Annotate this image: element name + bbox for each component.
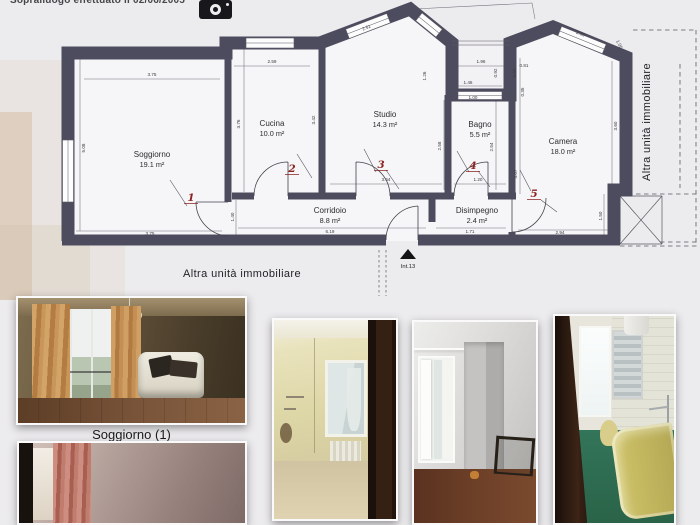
dim-label: 0.92	[512, 68, 517, 77]
photo-bathroom	[553, 314, 676, 525]
dark-door-frame	[368, 320, 396, 519]
dim-label: 3.64	[382, 177, 391, 182]
dark-doorway	[19, 443, 33, 523]
tile-floor	[274, 461, 369, 519]
room-area-disimpegno: 2.4 m²	[467, 216, 488, 225]
white-curtain-left	[421, 360, 431, 458]
dim-label: 1.50	[598, 211, 603, 220]
room-label-bagno: Bagno	[468, 120, 492, 129]
window-glass	[434, 360, 443, 458]
room-area-corridoio: 8.8 m²	[320, 216, 341, 225]
bathtub	[610, 422, 676, 521]
dim-label: 2.58	[437, 141, 442, 150]
dim-label: 2.59	[268, 59, 277, 64]
photo-soggiorno	[16, 296, 247, 425]
room-area-soggiorno: 19.1 m²	[140, 160, 165, 169]
room-number-3: 3	[377, 159, 384, 171]
room-area-bagno: 5.5 m²	[470, 130, 491, 139]
other-unit-hatch	[620, 196, 662, 244]
room-area-cucina: 10.0 m²	[260, 129, 285, 138]
page: Sopralluogo effettuato il 02/06/2005	[0, 0, 700, 525]
window-frame-bar	[91, 309, 93, 409]
dim-label: 1.00	[469, 95, 478, 100]
entrance-label: Int.13	[401, 264, 416, 270]
dim-label: 0.81	[520, 63, 529, 68]
dim-label: 4.07	[513, 169, 518, 178]
red-curtain	[53, 443, 91, 523]
dim-label: 0.92	[493, 68, 498, 77]
photo-room-partial	[17, 441, 247, 525]
roller-shutter	[612, 330, 643, 398]
room-area-camera: 18.0 m²	[551, 147, 576, 156]
window-shaft-top	[452, 41, 510, 45]
floor-plan: Soggiorno 19.1 m² Cucina 10.0 m² Studio …	[0, 0, 700, 300]
dim-label: 3.60	[613, 121, 618, 130]
balcony-rail	[70, 371, 113, 373]
bathroom-window	[579, 326, 611, 417]
room-label-soggiorno: Soggiorno	[134, 150, 171, 159]
dim-label: 3.42	[311, 115, 316, 124]
dim-label: 1.26	[422, 71, 427, 80]
dim-label: 1.71	[466, 229, 475, 234]
white-curtain-right	[443, 360, 453, 458]
radiator	[330, 441, 361, 461]
bed-frame	[493, 435, 535, 476]
other-unit-label-right: Altra unità immobiliare	[641, 63, 653, 181]
photo-caption-soggiorno: Soggiorno (1)	[16, 427, 247, 442]
apartment-floor	[68, 9, 626, 241]
dim-label: 3.75	[146, 231, 155, 236]
window-curtain	[347, 368, 360, 432]
dim-label: 1.46	[464, 80, 473, 85]
dim-label: 5.08	[81, 143, 86, 152]
room-number-5: 5	[530, 188, 537, 200]
room-number-4: 4	[469, 160, 476, 172]
photo-kitchen	[272, 318, 398, 521]
other-unit-label-bottom: Altra unità immobiliare	[183, 268, 301, 280]
room-label-disimpegno: Disimpegno	[456, 206, 499, 215]
room-label-corridoio: Corridoio	[314, 206, 347, 215]
dim-label: 3.76	[236, 119, 241, 128]
room-label-camera: Camera	[549, 137, 578, 146]
wall-pipe	[286, 396, 304, 398]
curtain-right	[111, 306, 141, 414]
wall-pipe-2	[284, 408, 296, 410]
room-label-cucina: Cucina	[260, 119, 285, 128]
orange-object	[470, 471, 479, 479]
wall-corner-line	[314, 338, 315, 453]
room-area-studio: 14.3 m²	[373, 120, 398, 129]
photo-bedroom	[412, 320, 538, 525]
room-label-studio: Studio	[374, 110, 397, 119]
boiler	[624, 316, 649, 335]
dim-label: 1.20	[474, 177, 483, 182]
dim-label: 3.75	[148, 72, 157, 77]
cornice-line	[414, 348, 470, 350]
sofa-cushion-dark-2	[169, 359, 198, 378]
dim-label: 2.54	[489, 142, 494, 151]
dim-label: 1.96	[477, 59, 486, 64]
entrance-arrow	[400, 249, 416, 259]
dim-label: 1.40	[230, 212, 235, 221]
window-slice	[33, 448, 53, 520]
room-number-2: 2	[287, 163, 295, 175]
dim-label: 6.19	[326, 229, 335, 234]
wood-floor	[18, 398, 245, 423]
dim-label: 0.35	[520, 87, 525, 96]
room-number-1: 1	[187, 192, 194, 204]
dim-label: 2.94	[556, 230, 565, 235]
